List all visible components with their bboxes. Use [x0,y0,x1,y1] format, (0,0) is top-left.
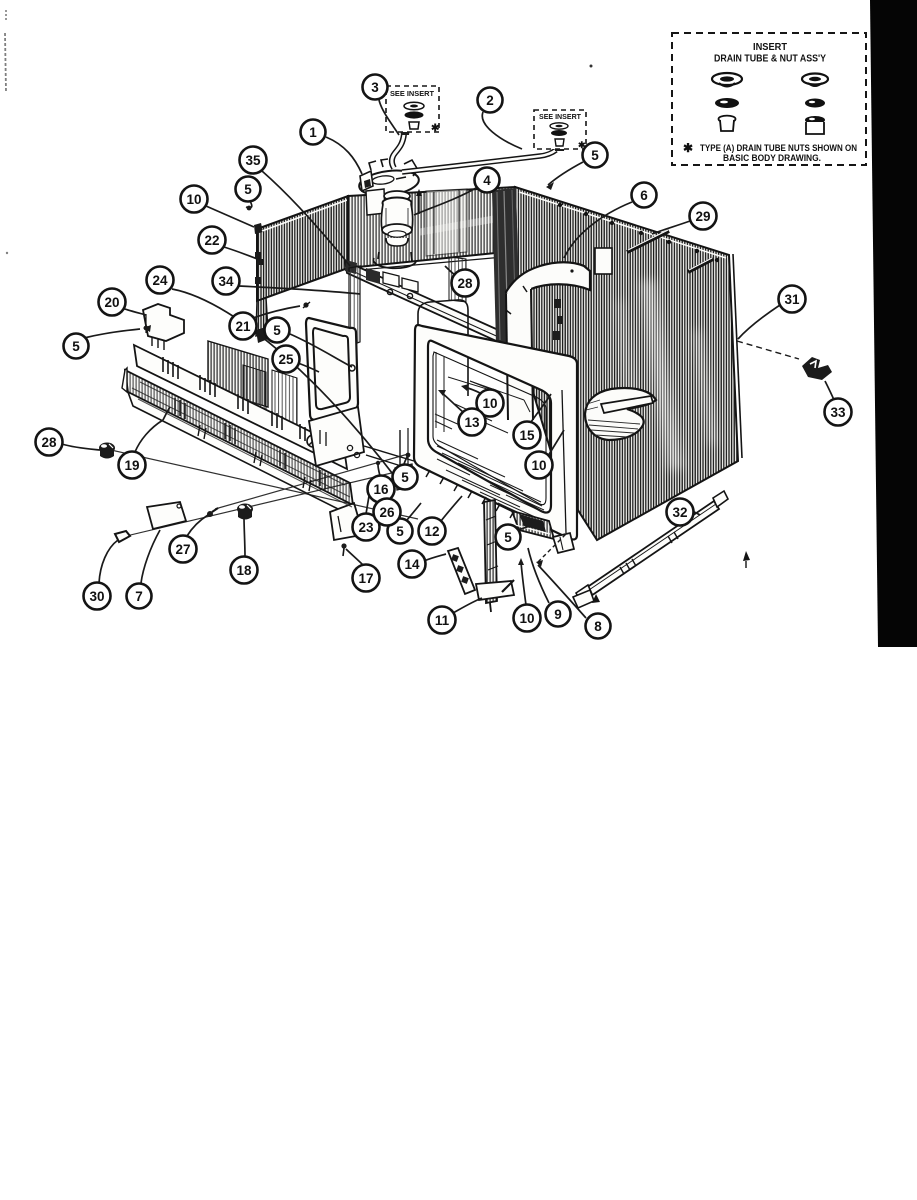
svg-text:12: 12 [424,524,439,539]
svg-text:5: 5 [396,524,404,539]
svg-text:4: 4 [483,173,491,188]
svg-text:25: 25 [278,352,294,367]
svg-text:20: 20 [104,295,119,310]
svg-text:10: 10 [531,458,546,473]
svg-text:11: 11 [435,613,450,628]
svg-text:1: 1 [309,125,317,140]
svg-text:15: 15 [519,428,535,443]
svg-text:3: 3 [371,80,379,95]
svg-text:INSERT: INSERT [753,42,787,53]
svg-text:SEE INSERT: SEE INSERT [390,89,434,98]
svg-text:19: 19 [124,458,139,473]
svg-text:32: 32 [672,505,687,520]
svg-text:✱: ✱ [431,123,440,134]
svg-text:26: 26 [379,505,395,520]
svg-text:8: 8 [594,619,602,634]
svg-text:6: 6 [640,188,648,203]
svg-text:34: 34 [218,274,234,289]
svg-text:✱: ✱ [683,141,693,155]
svg-text:10: 10 [482,396,497,411]
svg-text:28: 28 [457,276,473,291]
svg-text:23: 23 [358,520,374,535]
svg-text:13: 13 [464,415,480,430]
svg-text:29: 29 [695,209,710,224]
svg-text:9: 9 [554,607,562,622]
svg-text:5: 5 [72,339,80,354]
svg-text:7: 7 [135,589,143,604]
svg-text:5: 5 [273,323,281,338]
svg-text:31: 31 [784,292,800,307]
svg-text:17: 17 [358,571,373,586]
svg-text:30: 30 [89,589,104,604]
svg-text:33: 33 [830,405,846,420]
svg-text:DRAIN TUBE & NUT ASS'Y: DRAIN TUBE & NUT ASS'Y [714,54,826,65]
svg-text:10: 10 [519,611,534,626]
svg-text:21: 21 [235,319,251,334]
svg-text:14: 14 [404,557,420,572]
svg-text:18: 18 [236,563,252,578]
svg-text:10: 10 [186,192,201,207]
svg-text:SEE INSERT: SEE INSERT [539,114,582,121]
svg-text:28: 28 [41,435,57,450]
svg-text:5: 5 [591,148,599,163]
svg-text:35: 35 [245,153,261,168]
svg-text:27: 27 [175,542,190,557]
svg-text:16: 16 [373,482,389,497]
svg-text:BASIC BODY DRAWING.: BASIC BODY DRAWING. [723,153,821,164]
svg-text:24: 24 [152,273,168,288]
svg-text:5: 5 [244,182,252,197]
svg-text:5: 5 [504,530,512,545]
svg-text:22: 22 [204,233,219,248]
svg-text:5: 5 [401,470,409,485]
svg-text:2: 2 [486,93,494,108]
